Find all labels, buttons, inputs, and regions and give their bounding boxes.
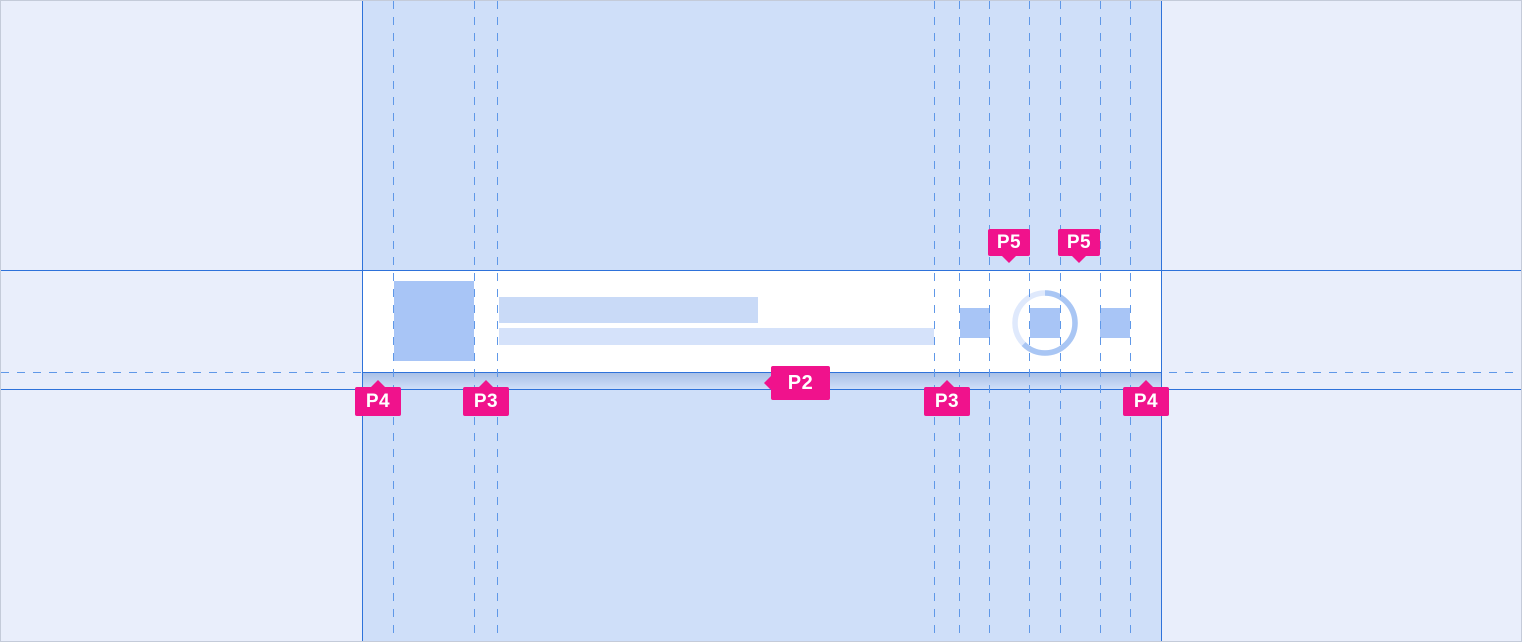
subtitle-placeholder-bar bbox=[499, 328, 934, 345]
pointer-up-icon bbox=[371, 380, 385, 387]
padding-label-p3-left: P3 bbox=[463, 387, 509, 416]
v-guide-icon1-end bbox=[989, 1, 990, 642]
v-guide-avatar-end bbox=[474, 1, 475, 642]
padding-label-p4-left: P4 bbox=[355, 387, 401, 416]
pointer-down-icon bbox=[1072, 256, 1086, 263]
spacing-spec-canvas: P5 P5 P2 P4 P3 P3 P4 bbox=[0, 0, 1522, 642]
v-guide-text-end bbox=[934, 1, 935, 642]
v-guide-text-start bbox=[497, 1, 498, 642]
padding-label-text: P3 bbox=[474, 392, 498, 411]
padding-label-p5-1: P5 bbox=[988, 229, 1030, 256]
v-guide-icon3-start bbox=[1100, 1, 1101, 642]
h-guide-row-bottom bbox=[1, 389, 1522, 390]
v-guide-content-start bbox=[393, 1, 394, 642]
pointer-up-icon bbox=[479, 380, 493, 387]
padding-label-text: P2 bbox=[788, 373, 813, 393]
padding-label-text: P5 bbox=[997, 233, 1021, 252]
pointer-left-icon bbox=[764, 376, 771, 390]
v-guide-icon1-start bbox=[959, 1, 960, 642]
pointer-up-icon bbox=[1139, 380, 1153, 387]
icon-placeholder-3 bbox=[1100, 308, 1130, 338]
v-guide-icon2-end bbox=[1060, 1, 1061, 642]
padding-label-text: P5 bbox=[1067, 233, 1091, 252]
pointer-up-icon bbox=[940, 380, 954, 387]
padding-label-text: P3 bbox=[935, 392, 959, 411]
padding-label-text: P4 bbox=[1134, 392, 1158, 411]
padding-label-p3-right: P3 bbox=[924, 387, 970, 416]
icon-placeholder-1 bbox=[960, 308, 990, 338]
loading-spinner-icon bbox=[1011, 289, 1079, 357]
padding-label-p2: P2 bbox=[771, 366, 830, 400]
title-placeholder-bar bbox=[499, 297, 758, 323]
h-guide-row-top bbox=[1, 270, 1522, 271]
v-guide-icon2-start bbox=[1029, 1, 1030, 642]
padding-label-p4-right: P4 bbox=[1123, 387, 1169, 416]
avatar-placeholder bbox=[394, 281, 474, 361]
pointer-down-icon bbox=[1002, 256, 1016, 263]
padding-label-text: P4 bbox=[366, 392, 390, 411]
v-guide-icon3-end bbox=[1130, 1, 1131, 642]
padding-label-p5-2: P5 bbox=[1058, 229, 1100, 256]
